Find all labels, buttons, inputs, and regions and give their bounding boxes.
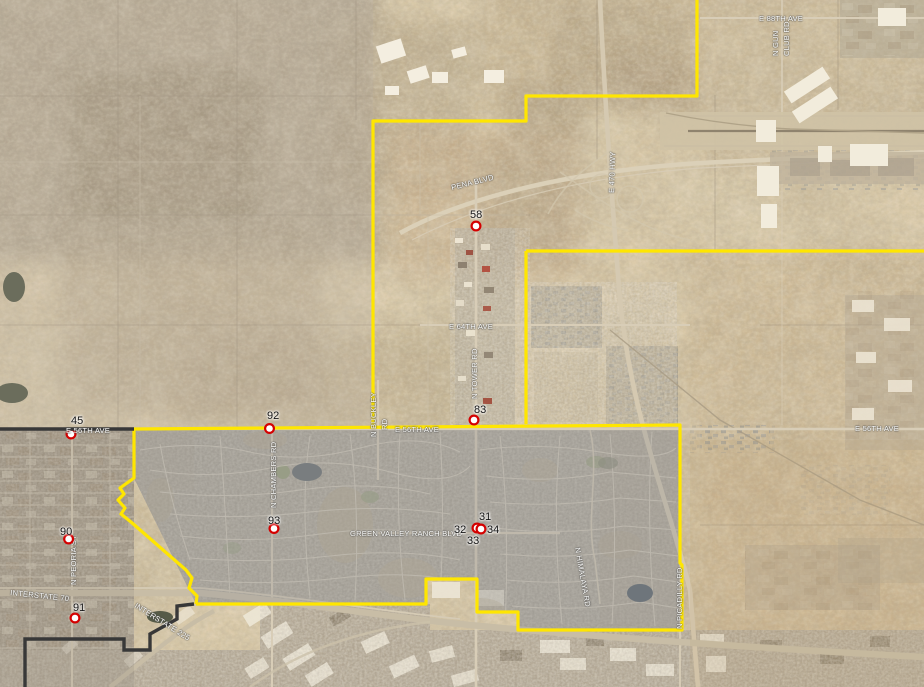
svg-text:E 470 HWY: E 470 HWY [607,151,617,193]
svg-text:N GUN: N GUN [771,31,780,56]
svg-text:83: 83 [474,404,486,416]
svg-text:58: 58 [470,209,482,221]
svg-text:CLUB RD: CLUB RD [782,21,791,56]
svg-text:E 56TH AVE: E 56TH AVE [395,425,439,434]
svg-text:N TOWER RD: N TOWER RD [470,348,479,399]
svg-text:31: 31 [479,511,491,523]
svg-text:92: 92 [267,410,279,422]
svg-text:90: 90 [60,526,72,538]
svg-text:N BUCKLEY: N BUCKLEY [369,392,378,437]
svg-text:N PICADILLY RD: N PICADILLY RD [675,567,684,629]
svg-text:33: 33 [467,535,479,547]
svg-text:N CHAMBERS RD: N CHAMBERS RD [269,441,278,508]
svg-text:34: 34 [487,524,499,536]
svg-text:32: 32 [454,524,466,536]
svg-text:RD: RD [380,418,389,430]
svg-text:E 56TH AVE: E 56TH AVE [66,426,110,435]
svg-text:E 56TH AVE: E 56TH AVE [855,424,899,433]
svg-text:45: 45 [71,415,83,427]
svg-text:E 64TH AVE: E 64TH AVE [449,322,493,331]
svg-text:GREEN VALLEY RANCH BLVD: GREEN VALLEY RANCH BLVD [350,529,463,538]
svg-text:91: 91 [73,602,85,614]
svg-text:93: 93 [268,515,280,527]
